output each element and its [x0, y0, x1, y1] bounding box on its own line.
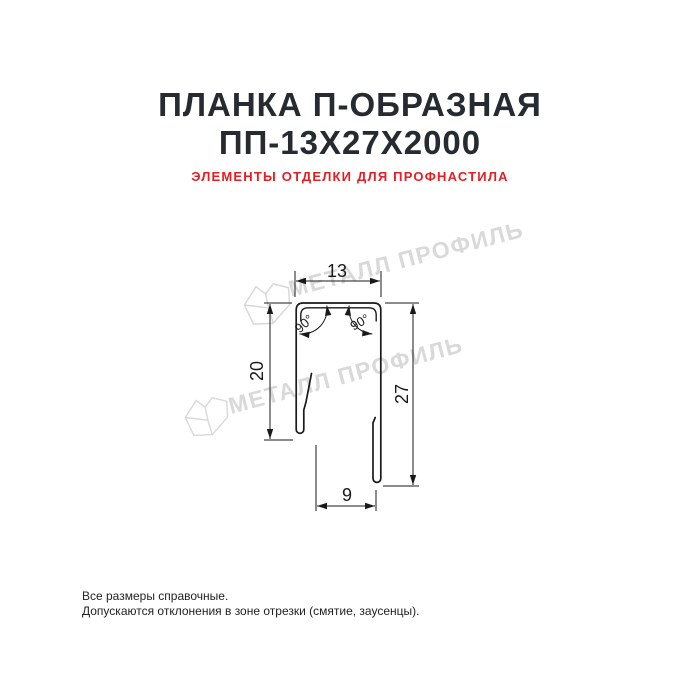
- dimension-label-20: 20: [247, 361, 267, 381]
- watermark-lower: МЕТАЛЛ ПРОФИЛЬ: [185, 331, 466, 435]
- watermark-text-upper: МЕТАЛЛ ПРОФИЛЬ: [286, 216, 527, 302]
- dimension-label-13: 13: [327, 261, 347, 281]
- dimension-label-27: 27: [392, 384, 412, 404]
- metall-profil-logo-icon: [185, 398, 227, 436]
- watermark-upper: МЕТАЛЛ ПРОФИЛЬ: [244, 216, 526, 324]
- footer-notes: Все размеры справочные. Допускаются откл…: [82, 589, 419, 619]
- angle-label-right: 90°: [347, 311, 372, 334]
- footer-note-line2: Допускаются отклонения в зоне отрезки (с…: [82, 604, 419, 619]
- product-drawing-page: ПЛАНКА П-ОБРАЗНАЯ ПП-13Х27Х2000 ЭЛЕМЕНТЫ…: [0, 0, 700, 700]
- footer-note-line1: Все размеры справочные.: [82, 589, 419, 604]
- metall-profil-logo-icon: [244, 284, 289, 324]
- dimension-label-9: 9: [342, 485, 352, 505]
